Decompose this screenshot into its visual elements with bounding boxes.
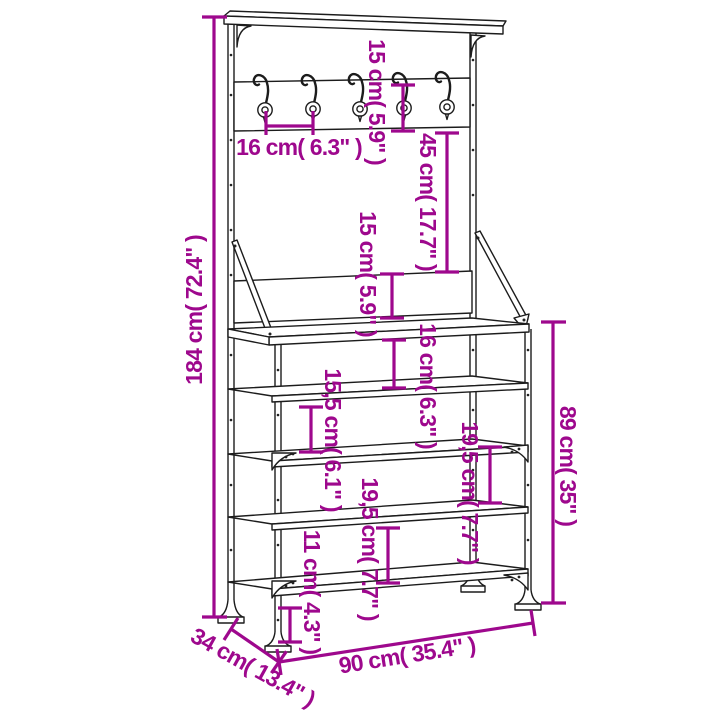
dim-shelf-gap-upper-label: 15,5 cm( 6.1" ) <box>320 368 346 512</box>
back-right-foot <box>461 586 485 592</box>
dim-hook-spacing-label: 16 cm( 6.3" ) <box>236 134 362 160</box>
dim-backboard-height-label: 15 cm( 5.9" ) <box>355 211 381 337</box>
dim-total-height-label: 184 cm( 72.4" ) <box>181 235 207 385</box>
front-right-foot <box>515 604 541 610</box>
backboard <box>234 271 472 323</box>
dim-bench-to-shelf-label: 16 cm( 6.3" ) <box>415 323 441 449</box>
dim-shelf-gap-lower-label: 19,5 cm( 7.7" ) <box>357 477 383 621</box>
dim-floor-clearance-label: 11 cm( 4.3" ) <box>299 530 325 655</box>
dim-rail-to-backboard-label: 45 cm( 17.7" ) <box>415 133 441 271</box>
diagram-canvas: 184 cm( 72.4" ) 15 cm( 5.9" ) 16 cm( 6.3… <box>0 0 720 720</box>
dim-shelf-gap-middle-label: 19,5 cm( 7.7" ) <box>457 421 483 565</box>
dim-rail-board-height-label: 15 cm( 5.9" ) <box>364 39 390 165</box>
dim-bench-height-label: 89 cm( 35" ) <box>555 406 581 526</box>
furniture-dimension-drawing: 184 cm( 72.4" ) 15 cm( 5.9" ) 16 cm( 6.3… <box>0 0 720 720</box>
